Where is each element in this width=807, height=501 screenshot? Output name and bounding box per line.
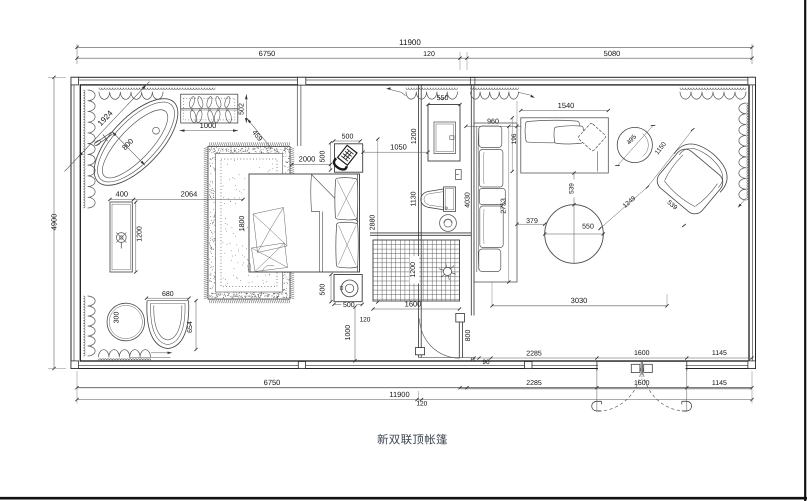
svg-text:120: 120	[416, 401, 427, 408]
svg-text:5080: 5080	[604, 49, 621, 58]
svg-text:300: 300	[114, 312, 121, 324]
svg-text:2064: 2064	[181, 190, 198, 199]
svg-text:6750: 6750	[264, 378, 281, 387]
svg-text:400: 400	[116, 190, 129, 199]
svg-text:379: 379	[526, 218, 538, 225]
svg-text:1145: 1145	[712, 350, 727, 357]
svg-text:500: 500	[320, 284, 327, 296]
svg-text:1200: 1200	[410, 262, 417, 278]
svg-text:120: 120	[360, 317, 371, 324]
svg-text:1130: 1130	[410, 191, 417, 206]
svg-text:1540: 1540	[558, 101, 575, 110]
svg-text:459: 459	[250, 129, 263, 143]
svg-text:3030: 3030	[571, 296, 588, 305]
svg-text:2880: 2880	[370, 215, 377, 231]
svg-text:1150: 1150	[654, 141, 668, 157]
svg-text:4030: 4030	[465, 192, 472, 208]
svg-text:800: 800	[120, 137, 135, 152]
svg-text:800: 800	[465, 330, 472, 342]
svg-text:2285: 2285	[526, 350, 542, 357]
svg-text:1000: 1000	[345, 325, 352, 341]
svg-text:654: 654	[187, 321, 194, 333]
svg-text:1000: 1000	[200, 121, 217, 130]
svg-text:500: 500	[319, 151, 326, 163]
svg-text:502: 502	[238, 103, 245, 115]
svg-text:2753: 2753	[501, 198, 508, 214]
svg-text:11900: 11900	[389, 390, 409, 399]
svg-text:1600: 1600	[634, 350, 650, 357]
svg-text:500: 500	[342, 134, 354, 141]
svg-text:1800: 1800	[239, 216, 246, 232]
svg-text:2285: 2285	[526, 380, 542, 387]
svg-text:550: 550	[582, 224, 594, 231]
svg-text:500: 500	[343, 302, 355, 309]
svg-text:1924: 1924	[96, 108, 115, 128]
svg-text:680: 680	[162, 291, 174, 298]
svg-text:新双联顶帐篷: 新双联顶帐篷	[377, 434, 448, 447]
svg-text:960: 960	[487, 119, 499, 126]
svg-text:2000: 2000	[299, 154, 316, 163]
svg-text:1200: 1200	[136, 226, 143, 242]
svg-text:11900: 11900	[399, 38, 421, 47]
svg-text:90: 90	[482, 359, 490, 366]
svg-text:1050: 1050	[390, 143, 407, 152]
svg-text:1249: 1249	[622, 195, 638, 210]
svg-text:1600: 1600	[634, 380, 650, 387]
svg-text:6750: 6750	[259, 49, 276, 58]
svg-text:539: 539	[568, 183, 575, 194]
svg-text:1200: 1200	[411, 128, 418, 144]
svg-text:1145: 1145	[712, 380, 727, 387]
svg-text:1600: 1600	[405, 300, 422, 309]
svg-text:550: 550	[437, 95, 449, 102]
svg-text:196: 196	[511, 133, 518, 144]
svg-text:4900: 4900	[50, 214, 59, 231]
svg-text:120: 120	[423, 51, 435, 58]
